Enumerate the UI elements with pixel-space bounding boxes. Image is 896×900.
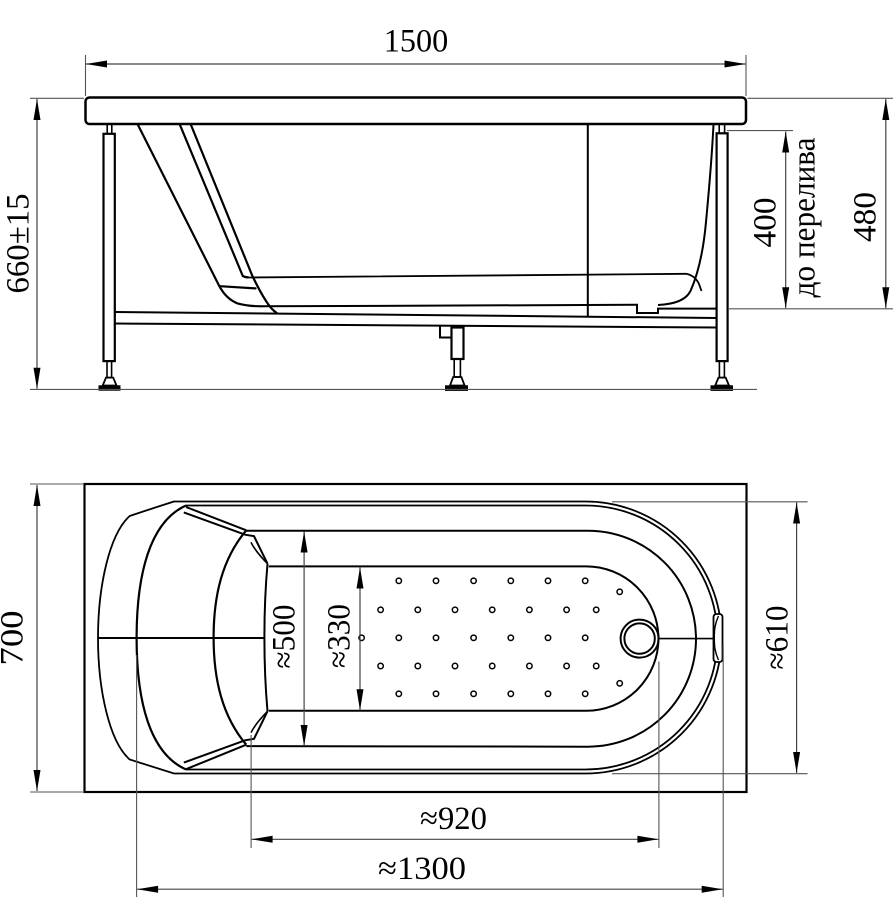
svg-text:≈1300: ≈1300 — [378, 851, 466, 887]
svg-text:700: 700 — [0, 611, 31, 666]
svg-text:480: 480 — [848, 192, 884, 242]
svg-text:400: 400 — [748, 198, 784, 248]
svg-text:1500: 1500 — [384, 24, 449, 60]
svg-text:≈500: ≈500 — [267, 605, 303, 669]
svg-text:660±15: 660±15 — [1, 194, 37, 294]
svg-text:≈610: ≈610 — [760, 606, 796, 670]
svg-text:до перелива: до перелива — [787, 137, 823, 297]
svg-text:≈330: ≈330 — [322, 604, 358, 668]
svg-text:≈920: ≈920 — [420, 801, 487, 837]
